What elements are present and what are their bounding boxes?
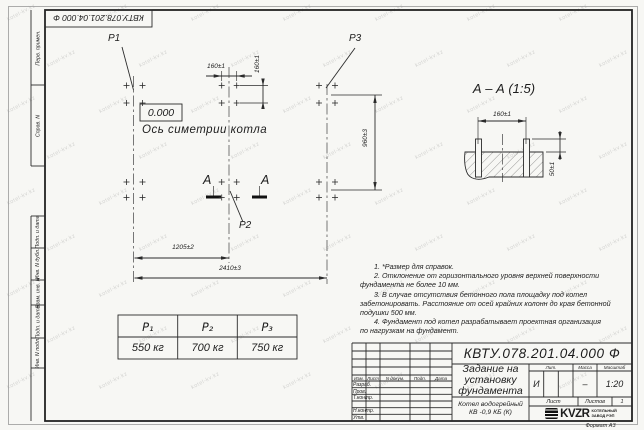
company-logo: KVZR КОТЕЛЬНЫЙ ЗАВОД РЭП bbox=[531, 406, 631, 421]
section-title: А – А (1:5) bbox=[462, 81, 546, 96]
value-lit: И bbox=[529, 371, 544, 397]
load-table-value-p1: 550 кг bbox=[118, 337, 178, 359]
dim-1205: 1205±2 bbox=[155, 244, 211, 251]
section-dim-160: 160±1 bbox=[482, 111, 522, 118]
value-mass: – bbox=[573, 371, 597, 397]
dim-2410: 2410±3 bbox=[202, 265, 258, 272]
margin-label-perv-primen: Перв. примен. bbox=[31, 10, 45, 85]
sig-header-podp: Подп. bbox=[410, 375, 430, 381]
section-cut-letter-left: А bbox=[203, 173, 211, 187]
load-point-p1-label: P1 bbox=[108, 33, 120, 44]
dim-960: 960±3 bbox=[359, 124, 371, 152]
symmetry-axis-label: Ось симетрии котла bbox=[142, 124, 267, 136]
margin-label-sprav-n: Справ. N bbox=[31, 85, 45, 166]
sig-row-razrab: Разраб. bbox=[353, 382, 371, 388]
load-table-header-p1: P₁ bbox=[118, 316, 178, 337]
level-mark: 0.000 bbox=[140, 104, 182, 121]
product-name-line: Котел водогрейный bbox=[458, 401, 523, 409]
section-cut-letter-right: А bbox=[261, 173, 269, 187]
sig-header-data: Дата bbox=[430, 375, 452, 381]
note-line: подушки 500 мм. bbox=[360, 308, 611, 317]
margin-label-inv-podl: Инв. N подл. bbox=[31, 338, 45, 368]
margin-label-podp-data-1: Подп. и дата bbox=[31, 216, 45, 248]
margin-label-vzam-inv: Взам. инв. N bbox=[31, 280, 45, 305]
load-table-header-p3: P₃ bbox=[237, 316, 297, 337]
header-scale: Масштаб bbox=[597, 364, 632, 371]
company-name: KVZR bbox=[560, 408, 589, 420]
note-line: 4. Фундамент под котел разрабатывает про… bbox=[360, 317, 611, 326]
note-line: 2. Отклонение от горизонтального уровня … bbox=[360, 271, 611, 280]
note-line: по нагрузкам на фундамент. bbox=[360, 326, 611, 335]
value-scale: 1:20 bbox=[597, 371, 632, 397]
label-sheet: Лист bbox=[529, 397, 578, 406]
load-point-p2-label: P2 bbox=[239, 220, 251, 231]
note-line: 1. *Размер для справок. bbox=[360, 262, 611, 271]
note-line: 3. В случае отсутствия бетонного пола пл… bbox=[360, 290, 611, 299]
drawing-sheet: kotel-kv.kzkotel-kv.kzkotel-kv.kzkotel-k… bbox=[0, 0, 644, 430]
doc-title: Задание на установку фундамента bbox=[452, 364, 529, 397]
sig-header-izm: Изм. bbox=[352, 375, 366, 381]
load-table-value-p2: 700 кг bbox=[178, 337, 238, 359]
product-name-line: КВ -0,9 КБ (К) bbox=[469, 409, 512, 417]
sig-header-list: Лист bbox=[366, 375, 380, 381]
sig-row-prov: Пров. bbox=[353, 389, 366, 395]
sig-row-tkontr: Т.контр. bbox=[353, 395, 373, 401]
company-desc: КОТЕЛЬНЫЙ ЗАВОД РЭП bbox=[591, 409, 616, 418]
doc-number: КВТУ.078.201.04.000 Ф bbox=[452, 343, 632, 364]
kvzr-logo-icon bbox=[545, 408, 558, 419]
margin-label-podp-data-2: Подп. и дата bbox=[31, 305, 45, 338]
dim-160-horizontal: 160±1 bbox=[196, 63, 236, 70]
note-line: забетонировать. Расстояние от осей крайн… bbox=[360, 299, 611, 308]
anchor-bolt-right bbox=[524, 139, 530, 177]
plan-axis-lines bbox=[134, 67, 328, 284]
value-sheets: 1 bbox=[612, 397, 632, 406]
company-desc-line: ЗАВОД РЭП bbox=[591, 414, 616, 418]
header-lit: Лит. bbox=[529, 364, 573, 371]
load-table-value-p3: 750 кг bbox=[237, 337, 297, 359]
doc-title-line: фундамента bbox=[458, 386, 523, 397]
load-point-p3-label: P3 bbox=[349, 33, 361, 44]
load-table-header-p2: P₂ bbox=[178, 316, 238, 337]
anchor-bolt-left bbox=[476, 139, 482, 177]
section-dim-50: 50±1 bbox=[546, 155, 558, 183]
label-sheets: Листов bbox=[578, 397, 612, 406]
sig-row-utv: Утв. bbox=[353, 415, 364, 421]
sig-row-nkontr: Н.контр. bbox=[353, 408, 374, 414]
margin-label-inv-dubl: Инв. N дубл. bbox=[31, 248, 45, 280]
sig-header-ndokum: N докум. bbox=[380, 375, 410, 381]
notes-block: 1. *Размер для справок. 2. Отклонение от… bbox=[360, 262, 611, 336]
top-stamp-text: КВТУ.078.201.04.000 Ф bbox=[45, 10, 152, 27]
note-line: фундамента не более 10 мм. bbox=[360, 280, 611, 289]
product-name: Котел водогрейный КВ -0,9 КБ (К) bbox=[452, 397, 529, 421]
header-mass: Масса bbox=[573, 364, 597, 371]
anchor-bolt-marks bbox=[124, 83, 339, 201]
dim-160-vertical: 160±1 bbox=[251, 50, 263, 78]
format-label: Формат А3 bbox=[573, 422, 628, 429]
